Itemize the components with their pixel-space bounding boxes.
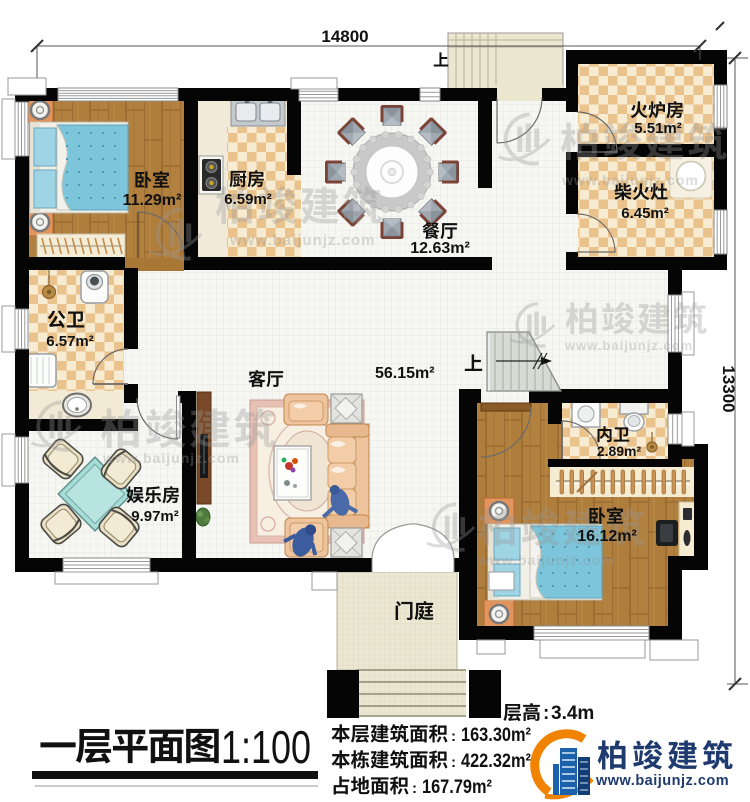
svg-text:422.32m²: 422.32m²	[461, 751, 531, 772]
svg-text:167.79m²: 167.79m²	[422, 777, 492, 798]
svg-text:11.29m²: 11.29m²	[123, 192, 182, 209]
svg-text:12.63m²: 12.63m²	[410, 240, 470, 257]
svg-text::: :	[543, 703, 549, 724]
svg-text:www.baijunjz.com: www.baijunjz.com	[564, 338, 693, 353]
svg-text:163.30m²: 163.30m²	[461, 725, 531, 746]
svg-text:3.4m: 3.4m	[551, 703, 594, 724]
svg-text:www.baijunjz.com: www.baijunjz.com	[102, 450, 240, 466]
svg-text:www.baijunjz.com: www.baijunjz.com	[229, 232, 375, 249]
svg-text:14800: 14800	[321, 27, 368, 46]
svg-text:13300: 13300	[719, 365, 738, 412]
svg-text::: :	[451, 728, 456, 745]
svg-text:6.57m²: 6.57m²	[46, 333, 94, 350]
svg-text:9.97m²: 9.97m²	[131, 508, 179, 525]
svg-text:6.45m²: 6.45m²	[621, 205, 669, 222]
svg-text:2.89m²: 2.89m²	[597, 443, 642, 459]
svg-text::: :	[412, 780, 417, 797]
svg-text:5.51m²: 5.51m²	[634, 120, 682, 137]
svg-text:www.baijunjz.com: www.baijunjz.com	[595, 773, 729, 789]
svg-text:56.15m²: 56.15m²	[375, 365, 435, 382]
svg-text:16.12m²: 16.12m²	[577, 528, 637, 545]
svg-text:6.59m²: 6.59m²	[224, 191, 272, 208]
svg-text::: :	[451, 754, 456, 771]
svg-text:www.baijunjz.com: www.baijunjz.com	[477, 552, 615, 568]
svg-text:1:100: 1:100	[221, 721, 311, 773]
